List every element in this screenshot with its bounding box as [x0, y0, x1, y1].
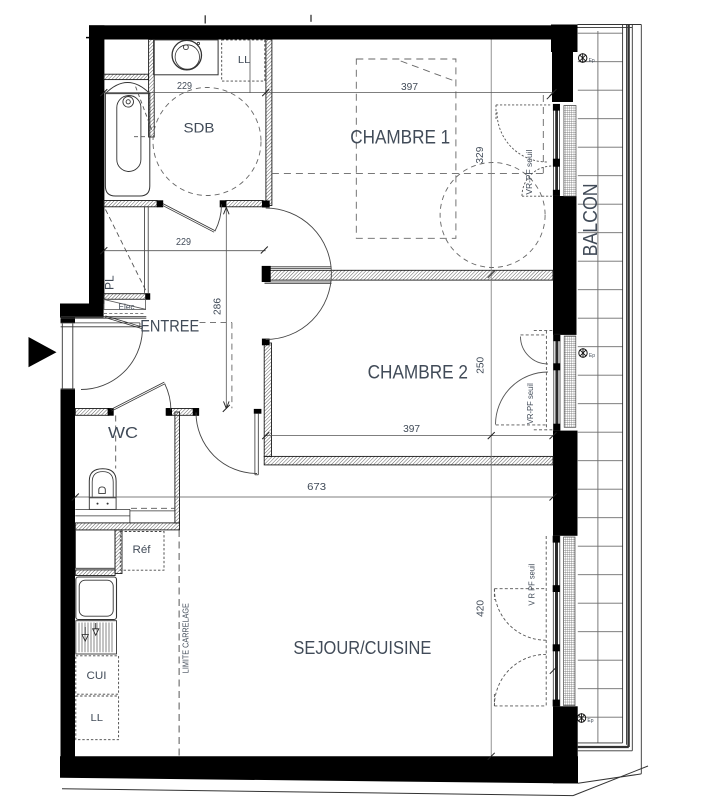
svg-text:V R PF seuil: V R PF seuil — [527, 564, 537, 606]
svg-text:CHAMBRE 2: CHAMBRE 2 — [368, 362, 468, 384]
svg-text:673: 673 — [307, 481, 326, 493]
svg-text:Ep: Ep — [589, 353, 595, 359]
svg-text:229: 229 — [177, 80, 192, 92]
svg-text:BALCON: BALCON — [579, 183, 602, 256]
svg-text:397: 397 — [401, 81, 418, 93]
svg-text:WC: WC — [108, 425, 138, 442]
svg-text:SDB: SDB — [184, 119, 215, 135]
svg-text:PL: PL — [102, 275, 116, 290]
svg-text:CHAMBRE 1: CHAMBRE 1 — [350, 126, 450, 148]
svg-text:VR-PF seuil: VR-PF seuil — [524, 149, 534, 194]
svg-text:Réf: Réf — [133, 544, 152, 556]
svg-text:286: 286 — [211, 298, 223, 315]
svg-text:VR-PF seuil: VR-PF seuil — [525, 383, 535, 424]
svg-text:329: 329 — [474, 146, 486, 163]
svg-text:SEJOUR/CUISINE: SEJOUR/CUISINE — [293, 637, 431, 658]
svg-text:LL: LL — [238, 54, 251, 66]
svg-text:LL: LL — [91, 712, 104, 724]
svg-text:ENTREE: ENTREE — [140, 316, 199, 335]
svg-text:250: 250 — [475, 357, 487, 374]
svg-text:Elec: Elec — [119, 302, 135, 311]
svg-text:229: 229 — [176, 236, 191, 248]
svg-text:LIMITE CARRELAGE: LIMITE CARRELAGE — [181, 603, 191, 673]
svg-text:420: 420 — [474, 600, 486, 617]
svg-text:CUI: CUI — [87, 670, 107, 682]
svg-text:397: 397 — [403, 423, 420, 435]
svg-text:Ep: Ep — [587, 718, 593, 724]
svg-text:Ep: Ep — [589, 58, 595, 64]
